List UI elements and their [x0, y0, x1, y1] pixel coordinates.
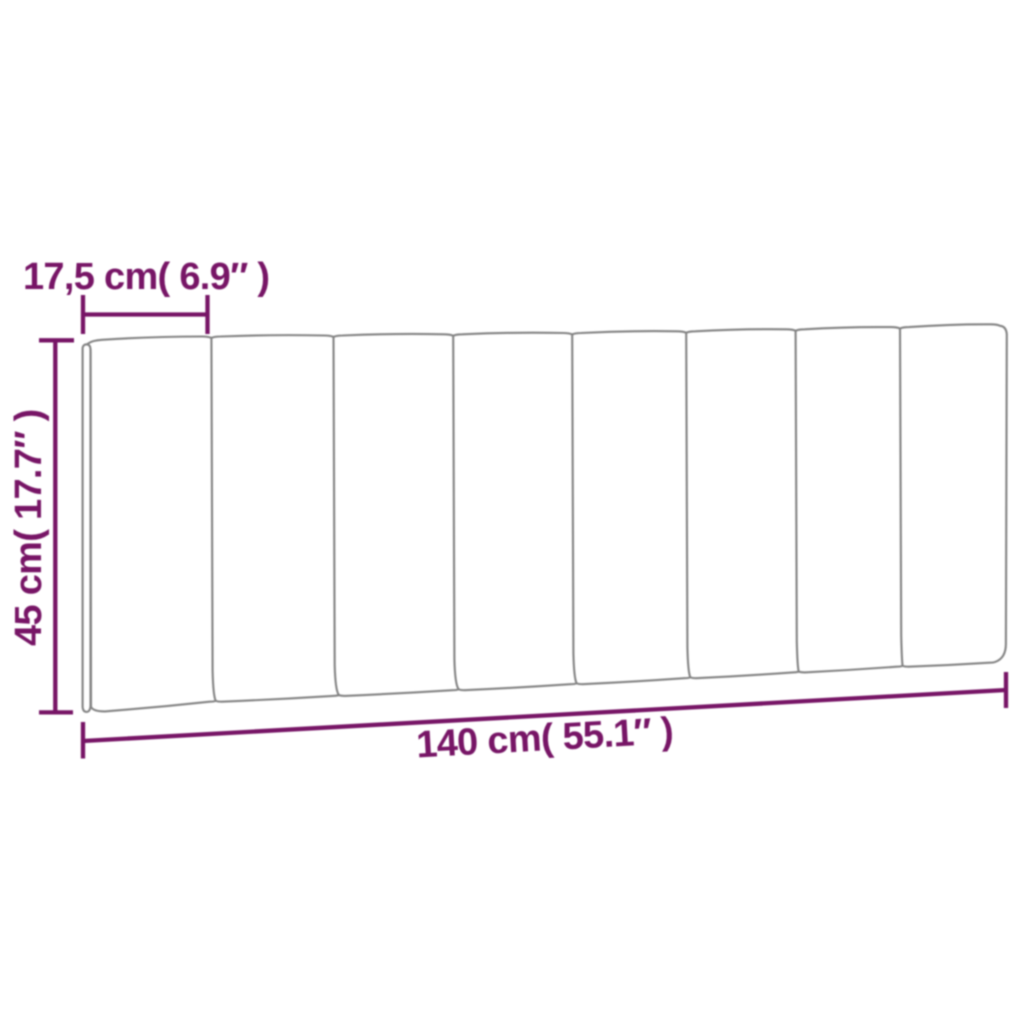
svg-text:45 cm( 17.7″ ): 45 cm( 17.7″ ) [8, 409, 50, 646]
svg-text:17,5 cm( 6.9″ ): 17,5 cm( 6.9″ ) [23, 256, 269, 298]
